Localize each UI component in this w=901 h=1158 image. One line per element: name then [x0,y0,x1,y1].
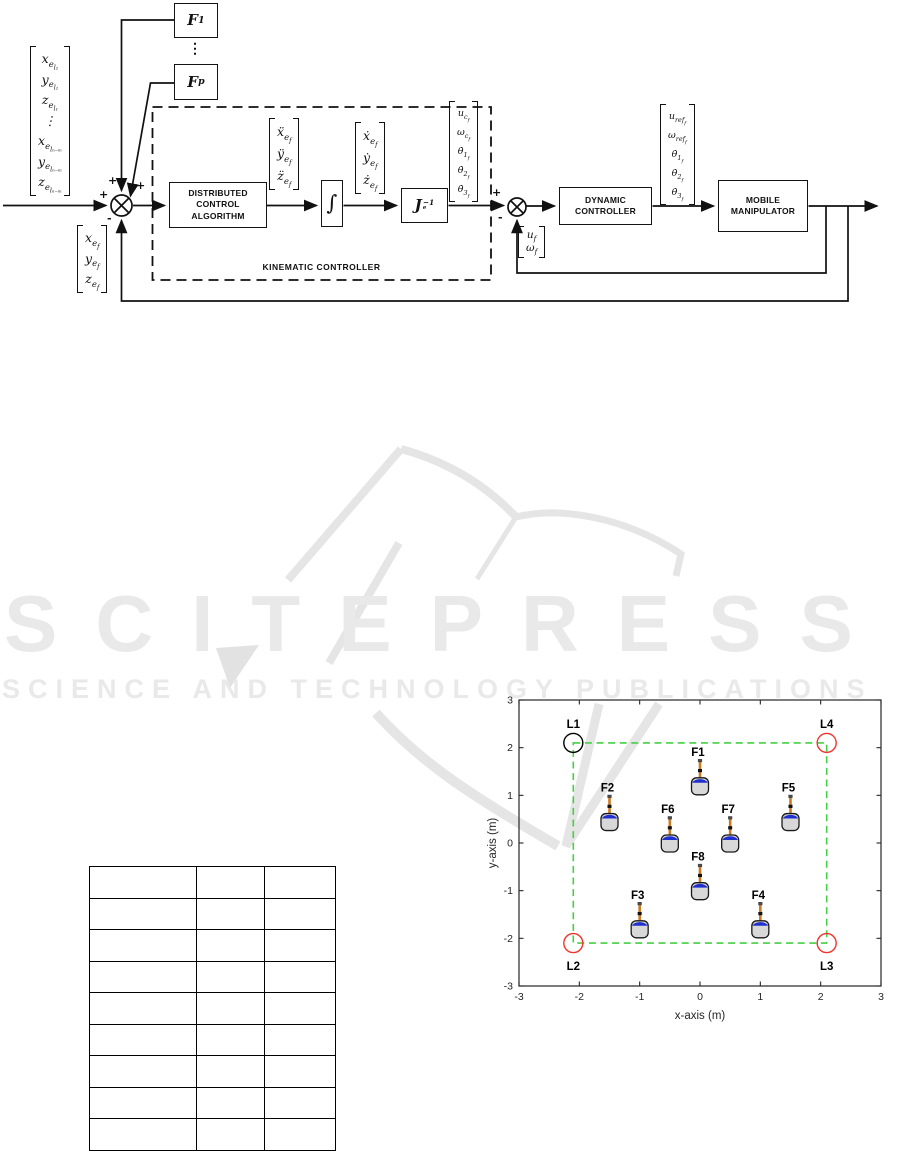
kinematic-controller-label: KINEMATIC CONTROLLER [152,263,491,272]
follower-label: F2 [601,783,614,795]
mobile-manipulator-block: MOBILE MANIPULATOR [718,180,808,232]
table-row [90,961,336,993]
input-error-vector: xel₁yel₁zel₁⋮xelₙ₋ₘyelₙ₋ₘzelₙ₋ₘ [30,46,70,196]
fp-subscript: p [198,77,205,86]
x-tick-label: 0 [697,991,703,1003]
table-cell [90,898,197,930]
table-row [90,1087,336,1119]
ellipsis-vertical: ⋮ [188,42,202,56]
paper-page: SCITEPRESS SCIENCE AND TECHNOLOGY PUBLIC… [0,0,901,1158]
table-cell [90,1024,197,1056]
table-row [90,1119,336,1151]
follower-label: F4 [752,890,766,902]
x-tick-label: 3 [878,991,884,1003]
table-cell [197,1056,265,1088]
table-cell [265,1056,336,1088]
x-tick-label: 1 [757,991,763,1003]
x-axis-label: x-axis (m) [675,1010,726,1022]
fp-label: F [187,75,198,90]
table-row [90,993,336,1025]
robot-arm-joint [668,826,672,829]
velocity-vector: ẋefẏefżef [355,122,385,194]
robot-arm-joint [789,805,793,808]
sum1-sign-bottom: - [107,213,112,224]
follower-label: F1 [691,747,705,759]
fp-block: Fp [174,64,218,100]
robot-arm-tip [698,759,702,762]
table-row [90,930,336,962]
f1-label: F [187,13,198,28]
robot-arm-tip [698,864,702,867]
empty-table [89,866,336,1151]
sum2-sign-top: + [492,187,501,198]
table-row [90,1056,336,1088]
y-tick-label: -3 [504,981,513,993]
y-tick-label: 0 [507,838,513,850]
robot-arm-joint [608,805,612,808]
y-tick-label: -2 [504,933,513,945]
robot-arm-tip [728,816,732,819]
table-cell [90,1087,197,1119]
table-cell [265,1087,336,1119]
robot-arm-joint [698,769,702,772]
x-tick-label: -3 [514,991,523,1003]
f1-subscript: 1 [198,16,205,25]
robot-arm-tip [758,902,762,905]
table-row [90,898,336,930]
robot-arm-tip [638,902,642,905]
integrator-block: ∫ [321,180,343,227]
follower-label: F8 [691,852,705,864]
table-cell [90,930,197,962]
y-tick-label: -1 [504,885,513,897]
jacobian-block: J−1e [401,188,448,223]
table-cell [265,867,336,899]
table-cell [265,993,336,1025]
robot-arm-tip [607,795,611,798]
y-axis-label: y-axis (m) [487,818,499,869]
table-cell [197,1087,265,1119]
distributed-control-block: DISTRIBUTED CONTROL ALGORITHM [169,182,267,228]
table-cell [90,961,197,993]
table-cell [90,867,197,899]
table-cell [265,930,336,962]
table-cell [90,1056,197,1088]
table-cell [265,961,336,993]
sum1-sign-left: + [99,189,108,200]
robot-arm-joint [758,912,762,915]
robot-arm-tip [668,816,672,819]
dynamic-controller-block: DYNAMIC CONTROLLER [559,187,652,225]
table-cell [197,1119,265,1151]
x-tick-label: -2 [575,991,584,1003]
results-table-container [89,866,336,1151]
jacobian-subscript: e [423,206,435,211]
table-cell [197,867,265,899]
table-cell [197,930,265,962]
table-cell [197,898,265,930]
table-cell [265,1119,336,1151]
sum2-sign-bottom: - [498,212,503,223]
leader-label: L4 [820,719,834,731]
leader-label: L2 [567,961,580,973]
y-tick-label: 2 [507,742,513,754]
table-cell [90,1119,197,1151]
table-row [90,867,336,899]
follower-label: F7 [721,804,734,816]
y-tick-label: 3 [507,695,513,707]
y-tick-label: 1 [507,790,513,802]
table-row [90,1024,336,1056]
robot-arm-joint [728,826,732,829]
robot-arm-tip [788,795,792,798]
table-cell [90,993,197,1025]
table-cell [197,993,265,1025]
follower-label: F5 [782,783,796,795]
table-cell [265,898,336,930]
table-cell [197,961,265,993]
kinematic-output-vector: ucfωcfθ̇1fθ̇2fθ̇3f [449,101,478,202]
robot-arm-joint [698,874,702,877]
jacobian-label: J [415,198,422,213]
sum1-sign-topright: + [136,180,145,191]
table-cell [265,1024,336,1056]
x-tick-label: 2 [818,991,824,1003]
follower-label: F6 [661,804,674,816]
table-cell [197,1024,265,1056]
acceleration-vector: ẍefÿefz̈ef [269,118,299,190]
reference-vector: ureffωreffθ̇1fθ̇2fθ̇3f [660,104,695,205]
x-tick-label: -1 [635,991,644,1003]
leader-label: L1 [567,719,581,731]
position-feedback-vector: xefyefzef [77,225,107,293]
f1-block: F1 [174,3,218,38]
velocity-feedback-vector: ufωf [518,226,545,258]
robot-arm-joint [638,912,642,915]
follower-label: F3 [631,890,644,902]
sum1-sign-top: + [108,175,117,186]
leader-label: L3 [820,961,833,973]
